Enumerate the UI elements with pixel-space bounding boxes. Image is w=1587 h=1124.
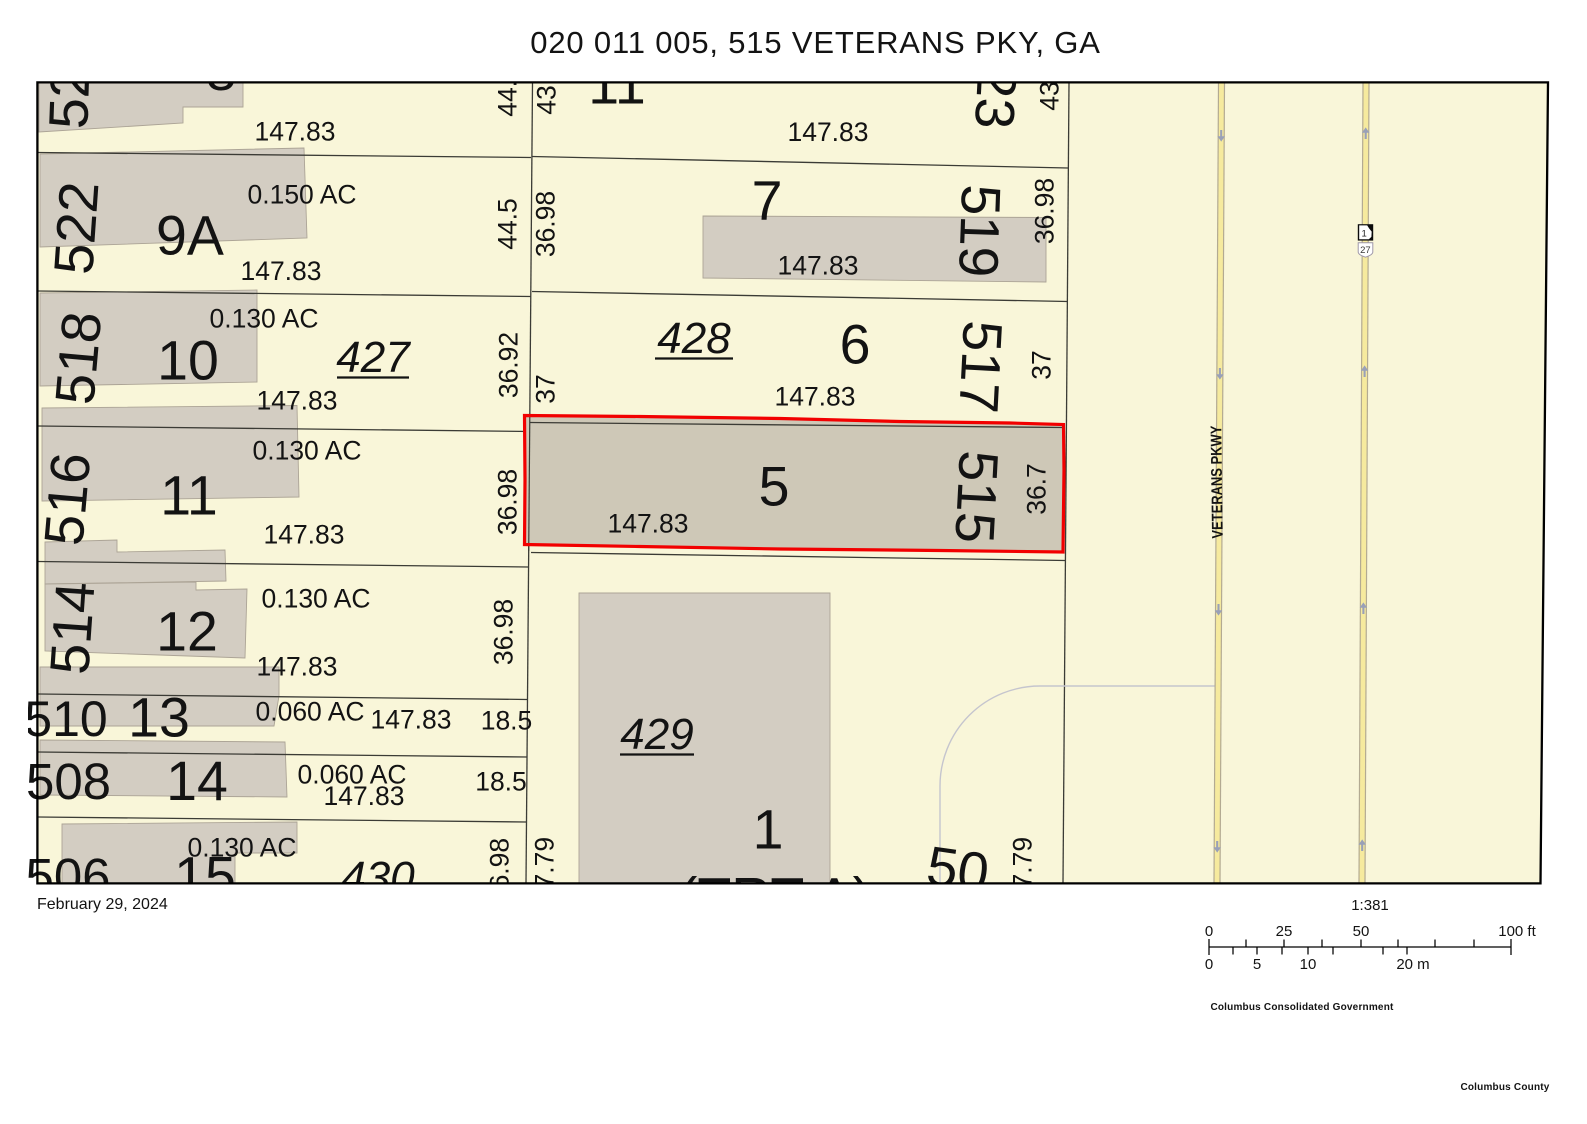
svg-text:36.98: 36.98 [485,838,515,904]
svg-text:36.92: 36.92 [494,332,524,398]
svg-text:147.83: 147.83 [787,117,868,147]
svg-text:7: 7 [752,169,783,231]
svg-text:43: 43 [1035,81,1065,110]
svg-text:427: 427 [336,333,411,382]
svg-text:517: 517 [947,319,1014,415]
svg-text:27: 27 [1360,245,1371,256]
svg-text:36.7: 36.7 [1022,463,1052,515]
svg-text:5: 5 [1253,956,1261,973]
svg-text:147.83: 147.83 [777,251,858,281]
svg-text:020 011 005, 515 VETERANS PKY: 020 011 005, 515 VETERANS PKY, GA [530,25,1100,60]
svg-text:515: 515 [943,449,1010,545]
svg-text:147.83: 147.83 [323,781,404,811]
svg-text:519: 519 [947,184,1012,279]
svg-text:43.5: 43.5 [532,63,562,115]
svg-text:1: 1 [1362,228,1367,239]
svg-text:147.83: 147.83 [240,256,321,286]
svg-text:12: 12 [156,600,218,662]
svg-text:428: 428 [657,314,731,363]
svg-text:100 ft: 100 ft [1498,923,1536,940]
svg-text:147.83: 147.83 [774,382,855,412]
svg-text:147.83: 147.83 [256,652,337,682]
svg-text:508: 508 [26,753,111,810]
svg-text:44.5: 44.5 [493,198,523,250]
svg-text:10: 10 [157,329,219,391]
svg-text:147.83: 147.83 [607,509,688,539]
svg-text:522: 522 [42,180,110,277]
svg-text:36.98: 36.98 [531,191,561,257]
svg-text:18.5: 18.5 [481,706,533,736]
svg-text:18.5: 18.5 [475,767,527,797]
svg-text:1:381: 1:381 [1351,897,1389,914]
svg-text:February 29, 2024: February 29, 2024 [37,896,168,913]
svg-text:518: 518 [43,309,113,407]
svg-text:50: 50 [1353,923,1370,940]
svg-text:13: 13 [128,686,190,748]
svg-text:0.130 AC: 0.130 AC [209,304,318,334]
svg-text:11: 11 [588,53,646,115]
svg-text:0.130 AC: 0.130 AC [252,436,361,466]
svg-text:1: 1 [753,798,784,860]
svg-text:37: 37 [1027,350,1057,379]
svg-text:8: 8 [206,40,237,102]
svg-text:Columbus Consolidated Governme: Columbus Consolidated Government [1210,1002,1394,1013]
svg-text:0.130 AC: 0.130 AC [261,584,370,614]
svg-text:44.5: 44.5 [493,65,523,117]
svg-text:67.79: 67.79 [1008,837,1038,903]
svg-text:67.79: 67.79 [530,837,560,903]
svg-text:11: 11 [160,464,218,526]
svg-text:429: 429 [620,710,693,759]
svg-text:430: 430 [341,853,415,902]
svg-text:147.83: 147.83 [254,117,335,147]
svg-text:147.83: 147.83 [263,520,344,550]
svg-text:10: 10 [1300,956,1317,973]
svg-text:52: 52 [37,66,101,130]
svg-text:37: 37 [531,374,561,403]
svg-text:36.98: 36.98 [493,469,523,535]
svg-text:516: 516 [32,450,102,548]
svg-text:50: 50 [923,834,993,904]
svg-text:20 m: 20 m [1396,956,1429,973]
svg-text:(TRT A): (TRT A) [679,866,871,928]
svg-text:23: 23 [963,66,1028,131]
svg-text:0: 0 [1205,956,1213,973]
svg-text:0.060 AC: 0.060 AC [255,697,364,727]
svg-text:VETERANS PKWY: VETERANS PKWY [1208,425,1227,539]
svg-text:36.98: 36.98 [1030,178,1060,244]
svg-text:9A: 9A [156,204,224,266]
svg-text:25: 25 [1276,923,1293,940]
svg-text:14: 14 [166,750,228,812]
svg-text:36.98: 36.98 [489,599,519,665]
svg-text:Columbus County: Columbus County [1460,1082,1549,1093]
svg-text:0.150 AC: 0.150 AC [247,180,356,210]
svg-text:147.83: 147.83 [256,386,337,416]
svg-text:514: 514 [38,580,106,677]
svg-text:0: 0 [1205,923,1213,940]
svg-text:147.83: 147.83 [370,705,451,735]
svg-text:5: 5 [759,455,790,517]
svg-text:6: 6 [840,313,871,375]
svg-text:15: 15 [174,845,236,907]
